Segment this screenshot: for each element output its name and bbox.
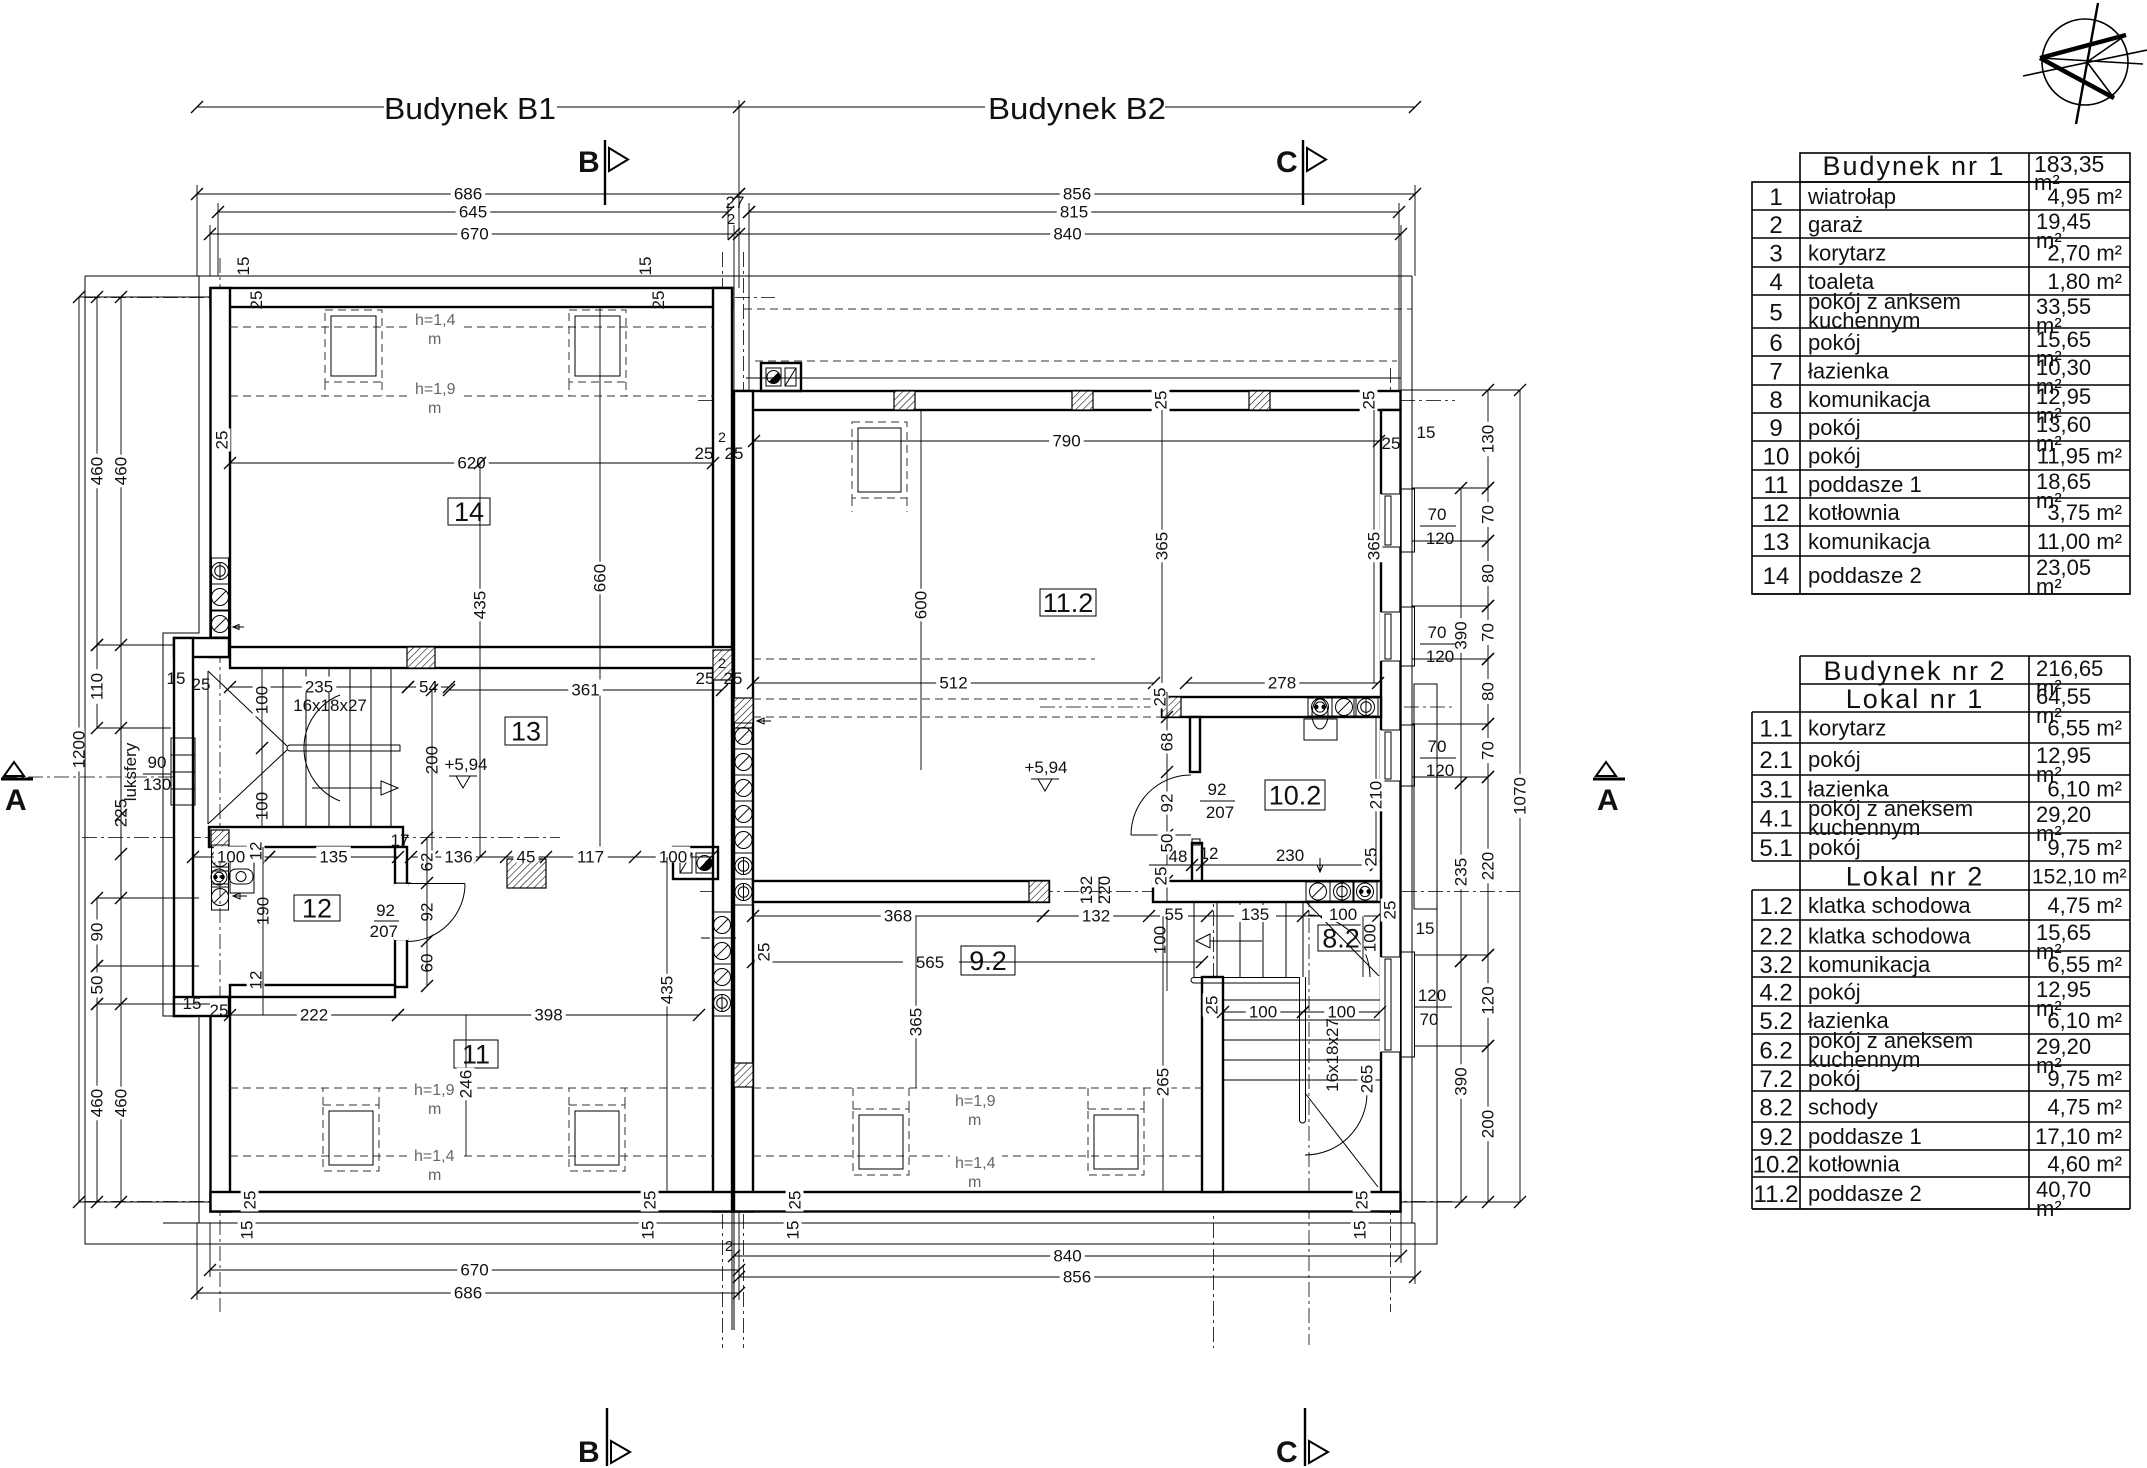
- svg-text:14: 14: [1763, 563, 1790, 590]
- svg-text:25: 25: [240, 1191, 259, 1210]
- svg-text:16x18x27: 16x18x27: [293, 696, 367, 715]
- svg-text:9.2: 9.2: [1759, 1124, 1792, 1151]
- svg-text:2: 2: [1769, 212, 1782, 239]
- svg-text:25: 25: [1202, 996, 1221, 1015]
- svg-text:pokój: pokój: [1808, 835, 1861, 860]
- svg-text:2: 2: [718, 655, 726, 671]
- svg-text:135: 135: [319, 847, 347, 866]
- svg-text:Lokal nr 1: Lokal nr 1: [1846, 684, 1985, 714]
- svg-text:435: 435: [657, 976, 676, 1004]
- svg-text:25: 25: [649, 291, 668, 310]
- svg-text:wiatrołap: wiatrołap: [1807, 184, 1896, 209]
- svg-text:790: 790: [1052, 431, 1080, 450]
- svg-text:m: m: [968, 1112, 981, 1129]
- svg-text:25: 25: [192, 675, 211, 694]
- svg-text:6,10 m²: 6,10 m²: [2047, 1008, 2122, 1033]
- svg-text:9: 9: [1769, 415, 1782, 442]
- svg-text:A: A: [1597, 784, 1619, 817]
- svg-text:10: 10: [1763, 444, 1790, 471]
- svg-text:h=1,4: h=1,4: [414, 1148, 455, 1165]
- svg-text:1,80 m²: 1,80 m²: [2047, 269, 2122, 294]
- svg-text:15: 15: [167, 669, 186, 688]
- svg-text:220: 220: [1478, 852, 1497, 880]
- svg-text:210: 210: [1366, 781, 1385, 809]
- svg-text:460: 460: [87, 1089, 106, 1117]
- svg-text:11: 11: [1764, 472, 1789, 499]
- svg-text:pokój: pokój: [1808, 980, 1861, 1005]
- svg-text:25: 25: [247, 291, 266, 310]
- svg-text:2,70 m²: 2,70 m²: [2047, 241, 2122, 266]
- svg-text:220: 220: [1095, 876, 1114, 904]
- svg-text:14: 14: [454, 497, 484, 527]
- svg-text:h=1,9: h=1,9: [415, 381, 456, 398]
- svg-text:+5,94: +5,94: [444, 755, 487, 774]
- svg-text:Budynek B1: Budynek B1: [384, 91, 556, 126]
- svg-text:9,75 m²: 9,75 m²: [2047, 835, 2122, 860]
- svg-text:100: 100: [217, 847, 245, 866]
- svg-text:25: 25: [725, 444, 744, 463]
- svg-text:15: 15: [1417, 423, 1436, 442]
- svg-text:25: 25: [1151, 867, 1170, 886]
- svg-text:68: 68: [1157, 733, 1176, 752]
- svg-text:7: 7: [1769, 359, 1782, 386]
- svg-text:11,00 m²: 11,00 m²: [2037, 529, 2122, 554]
- svg-text:pokój: pokój: [1808, 330, 1861, 355]
- svg-text:13: 13: [511, 717, 541, 747]
- svg-text:90: 90: [148, 753, 167, 772]
- svg-text:A: A: [5, 784, 27, 817]
- svg-text:7.2: 7.2: [1759, 1066, 1792, 1093]
- svg-text:12: 12: [1763, 500, 1790, 527]
- svg-text:265: 265: [1357, 1065, 1376, 1093]
- svg-text:poddasze 1: poddasze 1: [1808, 472, 1922, 497]
- svg-text:h=1,4: h=1,4: [955, 1155, 996, 1172]
- svg-text:815: 815: [1060, 202, 1088, 221]
- svg-text:398: 398: [534, 1005, 562, 1024]
- svg-text:100: 100: [1249, 1002, 1277, 1021]
- svg-text:B: B: [578, 1436, 600, 1468]
- svg-text:4: 4: [1769, 269, 1782, 296]
- svg-text:70: 70: [1478, 741, 1497, 760]
- svg-text:390: 390: [1451, 621, 1470, 649]
- svg-text:korytarz: korytarz: [1808, 716, 1886, 741]
- svg-text:2.1: 2.1: [1759, 747, 1792, 774]
- svg-text:25: 25: [754, 943, 773, 962]
- svg-text:660: 660: [590, 564, 609, 592]
- svg-text:Budynek nr 1: Budynek nr 1: [1822, 151, 2005, 181]
- svg-text:8: 8: [1769, 387, 1782, 414]
- svg-text:korytarz: korytarz: [1808, 241, 1886, 266]
- svg-text:80: 80: [1478, 564, 1497, 583]
- svg-text:840: 840: [1053, 224, 1081, 243]
- svg-text:6,55 m²: 6,55 m²: [2047, 716, 2122, 741]
- svg-text:2: 2: [725, 1238, 733, 1255]
- svg-text:15: 15: [636, 257, 655, 276]
- svg-text:200: 200: [1478, 1110, 1497, 1138]
- svg-text:11.2: 11.2: [1043, 588, 1094, 618]
- svg-text:komunikacja: komunikacja: [1808, 952, 1931, 977]
- svg-text:92: 92: [376, 901, 395, 920]
- svg-text:25: 25: [1151, 391, 1170, 410]
- svg-text:70: 70: [1428, 737, 1447, 756]
- svg-text:25: 25: [695, 444, 714, 463]
- svg-text:9,75 m²: 9,75 m²: [2047, 1066, 2122, 1091]
- svg-text:5: 5: [1769, 300, 1782, 327]
- svg-text:246: 246: [456, 1070, 475, 1098]
- svg-text:m: m: [968, 1174, 981, 1191]
- svg-text:m: m: [428, 400, 441, 417]
- svg-text:207: 207: [370, 922, 398, 941]
- svg-text:25: 25: [1382, 434, 1401, 453]
- svg-text:120: 120: [1426, 529, 1454, 548]
- svg-text:12: 12: [1200, 844, 1219, 863]
- svg-text:1070: 1070: [1510, 777, 1529, 815]
- svg-text:m²: m²: [2036, 1196, 2062, 1221]
- svg-text:117: 117: [577, 847, 604, 866]
- svg-text:92: 92: [1157, 794, 1176, 813]
- svg-text:15: 15: [1350, 1221, 1369, 1240]
- svg-text:365: 365: [1364, 532, 1383, 560]
- svg-text:70: 70: [1428, 505, 1447, 524]
- svg-text:12: 12: [302, 894, 332, 924]
- svg-text:600: 600: [911, 591, 930, 619]
- svg-text:70: 70: [1428, 623, 1447, 642]
- svg-text:670: 670: [460, 224, 488, 243]
- svg-text:10.2: 10.2: [1269, 781, 1322, 811]
- svg-text:2: 2: [718, 429, 726, 445]
- svg-text:100: 100: [659, 847, 687, 866]
- svg-text:686: 686: [454, 1283, 482, 1302]
- svg-text:klatka schodowa: klatka schodowa: [1808, 893, 1971, 918]
- svg-text:6,55 m²: 6,55 m²: [2047, 952, 2122, 977]
- svg-text:25: 25: [785, 1191, 804, 1210]
- svg-text:70: 70: [1420, 1010, 1439, 1029]
- svg-text:poddasze 2: poddasze 2: [1808, 1181, 1922, 1206]
- svg-text:8.2: 8.2: [1759, 1095, 1792, 1122]
- svg-text:620: 620: [457, 453, 485, 472]
- svg-text:pokój: pokój: [1808, 747, 1861, 772]
- svg-text:152,10 m²: 152,10 m²: [2032, 866, 2127, 889]
- svg-text:25: 25: [1361, 848, 1380, 867]
- svg-text:5.2: 5.2: [1759, 1008, 1792, 1035]
- svg-text:6,10 m²: 6,10 m²: [2047, 777, 2122, 802]
- svg-text:C: C: [1276, 146, 1298, 179]
- svg-text:100: 100: [1329, 905, 1357, 924]
- svg-text:+5,94: +5,94: [1024, 758, 1067, 777]
- svg-text:łazienka: łazienka: [1808, 359, 1889, 384]
- svg-text:645: 645: [459, 202, 487, 221]
- svg-text:25: 25: [212, 431, 231, 450]
- svg-text:132: 132: [1077, 876, 1096, 904]
- svg-text:130: 130: [1478, 425, 1497, 453]
- svg-text:3,75 m²: 3,75 m²: [2047, 500, 2122, 525]
- svg-text:komunikacja: komunikacja: [1808, 529, 1931, 554]
- svg-text:120: 120: [1426, 647, 1454, 666]
- svg-text:1200: 1200: [69, 731, 88, 769]
- svg-text:435: 435: [470, 591, 489, 619]
- svg-text:17: 17: [391, 831, 410, 850]
- svg-text:pokój: pokój: [1808, 444, 1861, 469]
- svg-text:92: 92: [1208, 780, 1227, 799]
- svg-text:klatka schodowa: klatka schodowa: [1808, 924, 1971, 949]
- svg-text:poddasze 2: poddasze 2: [1808, 563, 1922, 588]
- svg-text:365: 365: [1152, 532, 1171, 560]
- svg-text:235: 235: [305, 677, 333, 696]
- svg-text:222: 222: [300, 1005, 328, 1024]
- svg-text:1: 1: [1769, 184, 1782, 211]
- svg-text:m: m: [428, 1101, 441, 1118]
- svg-text:460: 460: [87, 457, 106, 485]
- svg-text:C: C: [1276, 1436, 1298, 1468]
- svg-text:3.2: 3.2: [1759, 952, 1792, 979]
- svg-text:90: 90: [87, 923, 106, 942]
- svg-text:135: 135: [1241, 905, 1269, 924]
- svg-text:6.2: 6.2: [1759, 1038, 1792, 1065]
- svg-text:25: 25: [210, 1001, 229, 1020]
- svg-text:278: 278: [1268, 673, 1296, 692]
- svg-text:856: 856: [1063, 184, 1091, 203]
- svg-text:11,95 m²: 11,95 m²: [2037, 444, 2122, 469]
- svg-text:361: 361: [571, 680, 599, 699]
- svg-text:110: 110: [87, 673, 106, 700]
- svg-text:15: 15: [638, 1221, 657, 1240]
- svg-text:17,10 m²: 17,10 m²: [2035, 1124, 2122, 1149]
- svg-text:670: 670: [460, 1260, 488, 1279]
- svg-text:70: 70: [1478, 505, 1497, 524]
- svg-text:4.1: 4.1: [1759, 806, 1792, 833]
- svg-text:25: 25: [640, 1191, 659, 1210]
- svg-text:368: 368: [884, 906, 912, 925]
- svg-text:25: 25: [1352, 1191, 1371, 1210]
- svg-text:235: 235: [1451, 858, 1470, 886]
- svg-text:50: 50: [87, 976, 106, 995]
- svg-text:120: 120: [1426, 761, 1454, 780]
- svg-text:8.2: 8.2: [1322, 924, 1360, 954]
- svg-text:390: 390: [1451, 1067, 1470, 1095]
- svg-text:460: 460: [111, 457, 130, 485]
- svg-text:3.1: 3.1: [1759, 777, 1792, 804]
- svg-text:1.2: 1.2: [1759, 893, 1792, 920]
- svg-text:120: 120: [1478, 986, 1497, 1014]
- svg-text:856: 856: [1063, 1267, 1091, 1286]
- svg-text:Budynek nr 2: Budynek nr 2: [1823, 656, 2006, 686]
- svg-text:komunikacja: komunikacja: [1808, 387, 1931, 412]
- svg-text:Lokal nr 2: Lokal nr 2: [1846, 862, 1985, 892]
- svg-text:Budynek B2: Budynek B2: [988, 91, 1166, 126]
- svg-text:120: 120: [1418, 986, 1446, 1005]
- svg-text:h=1,9: h=1,9: [414, 1082, 455, 1099]
- svg-text:garaż: garaż: [1808, 212, 1863, 237]
- svg-text:265: 265: [1153, 1068, 1172, 1096]
- svg-text:m: m: [428, 331, 441, 348]
- svg-text:15: 15: [183, 994, 202, 1013]
- svg-text:15: 15: [237, 1221, 256, 1240]
- svg-text:pokój: pokój: [1808, 415, 1861, 440]
- svg-text:230: 230: [1276, 846, 1304, 865]
- svg-text:130: 130: [143, 775, 171, 794]
- svg-text:6: 6: [1769, 330, 1782, 357]
- svg-text:4,95 m²: 4,95 m²: [2047, 184, 2122, 209]
- svg-text:5.1: 5.1: [1759, 835, 1792, 862]
- svg-text:h=1,4: h=1,4: [415, 312, 456, 329]
- svg-text:11.2: 11.2: [1754, 1181, 1799, 1208]
- svg-text:460: 460: [111, 1089, 130, 1117]
- svg-text:m: m: [428, 1167, 441, 1184]
- svg-text:h=1,9: h=1,9: [955, 1093, 996, 1110]
- svg-text:4.2: 4.2: [1759, 980, 1792, 1007]
- svg-text:136: 136: [444, 847, 472, 866]
- svg-text:25: 25: [1359, 391, 1378, 410]
- svg-text:365: 365: [906, 1008, 925, 1036]
- svg-text:512: 512: [939, 673, 967, 692]
- svg-text:3: 3: [1769, 241, 1782, 268]
- svg-text:16x18x27: 16x18x27: [1323, 1018, 1342, 1092]
- svg-text:pokój: pokój: [1808, 1066, 1861, 1091]
- svg-text:4,60 m²: 4,60 m²: [2047, 1152, 2122, 1177]
- svg-text:207: 207: [1206, 803, 1234, 822]
- svg-text:9.2: 9.2: [969, 946, 1007, 976]
- svg-text:25: 25: [696, 669, 715, 688]
- svg-text:565: 565: [916, 953, 944, 972]
- svg-text:70: 70: [1478, 623, 1497, 642]
- svg-text:25: 25: [1380, 901, 1399, 920]
- svg-text:10.2: 10.2: [1753, 1152, 1800, 1179]
- svg-text:45: 45: [517, 847, 536, 866]
- svg-text:840: 840: [1053, 1246, 1081, 1265]
- svg-text:4,75 m²: 4,75 m²: [2047, 893, 2122, 918]
- svg-text:B: B: [578, 146, 600, 179]
- svg-text:luksfery: luksfery: [121, 742, 140, 801]
- svg-text:13: 13: [1763, 529, 1790, 556]
- svg-text:15: 15: [783, 1221, 802, 1240]
- svg-text:48: 48: [1169, 847, 1188, 866]
- svg-text:4,75 m²: 4,75 m²: [2047, 1095, 2122, 1120]
- svg-text:80: 80: [1478, 682, 1497, 701]
- svg-text:2.2: 2.2: [1759, 924, 1792, 951]
- svg-text:kotłownia: kotłownia: [1808, 500, 1900, 525]
- svg-text:15: 15: [1416, 919, 1435, 938]
- svg-text:132: 132: [1082, 906, 1110, 925]
- svg-text:25: 25: [724, 669, 743, 688]
- svg-text:15: 15: [234, 257, 253, 276]
- svg-text:100: 100: [1327, 1002, 1355, 1021]
- svg-text:m²: m²: [2036, 574, 2062, 599]
- svg-text:kotłownia: kotłownia: [1808, 1152, 1900, 1177]
- svg-text:poddasze 1: poddasze 1: [1808, 1124, 1922, 1149]
- svg-text:schody: schody: [1808, 1095, 1878, 1120]
- svg-text:1.1: 1.1: [1759, 716, 1792, 743]
- svg-text:686: 686: [454, 184, 482, 203]
